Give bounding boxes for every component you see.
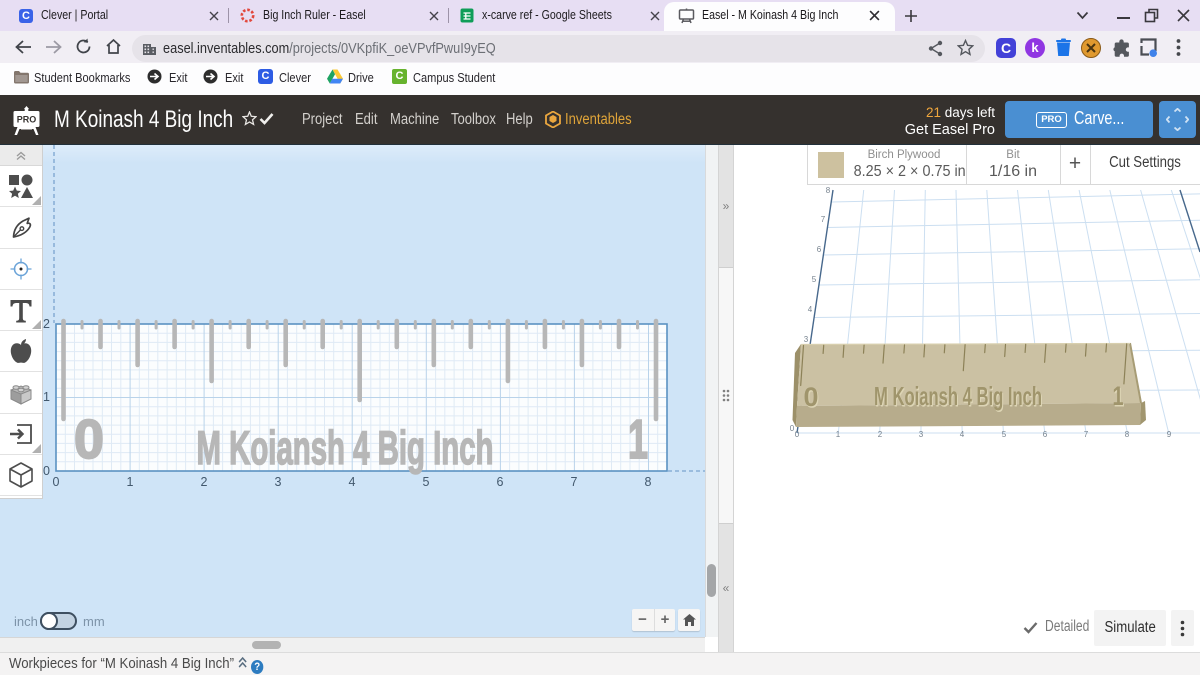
svg-text:7: 7 (1084, 430, 1089, 439)
svg-text:0: 0 (795, 430, 800, 439)
svg-text:6: 6 (1043, 430, 1048, 439)
svg-text:1: 1 (127, 475, 134, 489)
svg-text:2: 2 (878, 430, 883, 439)
svg-text:9: 9 (1167, 430, 1172, 439)
svg-text:M Koiansh 4 Big Inch: M Koiansh 4 Big Inch (874, 381, 1042, 411)
svg-text:1: 1 (43, 390, 50, 404)
svg-text:8: 8 (1125, 430, 1130, 439)
svg-text:1: 1 (836, 430, 841, 439)
svg-text:4: 4 (960, 430, 965, 439)
svg-text:8: 8 (645, 475, 652, 489)
svg-text:7: 7 (821, 215, 826, 224)
svg-text:4: 4 (349, 475, 356, 489)
svg-text:6: 6 (497, 475, 504, 489)
svg-text:M Koiansh 4 Big Inch: M Koiansh 4 Big Inch (197, 421, 494, 474)
svg-text:5: 5 (812, 275, 817, 284)
svg-text:8: 8 (826, 186, 831, 195)
svg-text:0: 0 (804, 382, 819, 412)
svg-text:5: 5 (423, 475, 430, 489)
svg-text:2: 2 (43, 317, 50, 331)
svg-text:0: 0 (790, 424, 795, 433)
svg-text:6: 6 (817, 245, 822, 254)
svg-text:0: 0 (43, 464, 50, 478)
svg-text:7: 7 (571, 475, 578, 489)
svg-text:4: 4 (808, 305, 813, 314)
svg-text:PRO: PRO (17, 115, 37, 125)
svg-text:1: 1 (1113, 381, 1124, 411)
svg-text:0: 0 (53, 475, 60, 489)
svg-text:0: 0 (74, 408, 104, 470)
svg-text:3: 3 (804, 335, 809, 344)
svg-text:1: 1 (628, 408, 648, 470)
svg-text:5: 5 (1002, 430, 1007, 439)
svg-text:3: 3 (275, 475, 282, 489)
svg-text:2: 2 (201, 475, 208, 489)
svg-text:3: 3 (919, 430, 924, 439)
